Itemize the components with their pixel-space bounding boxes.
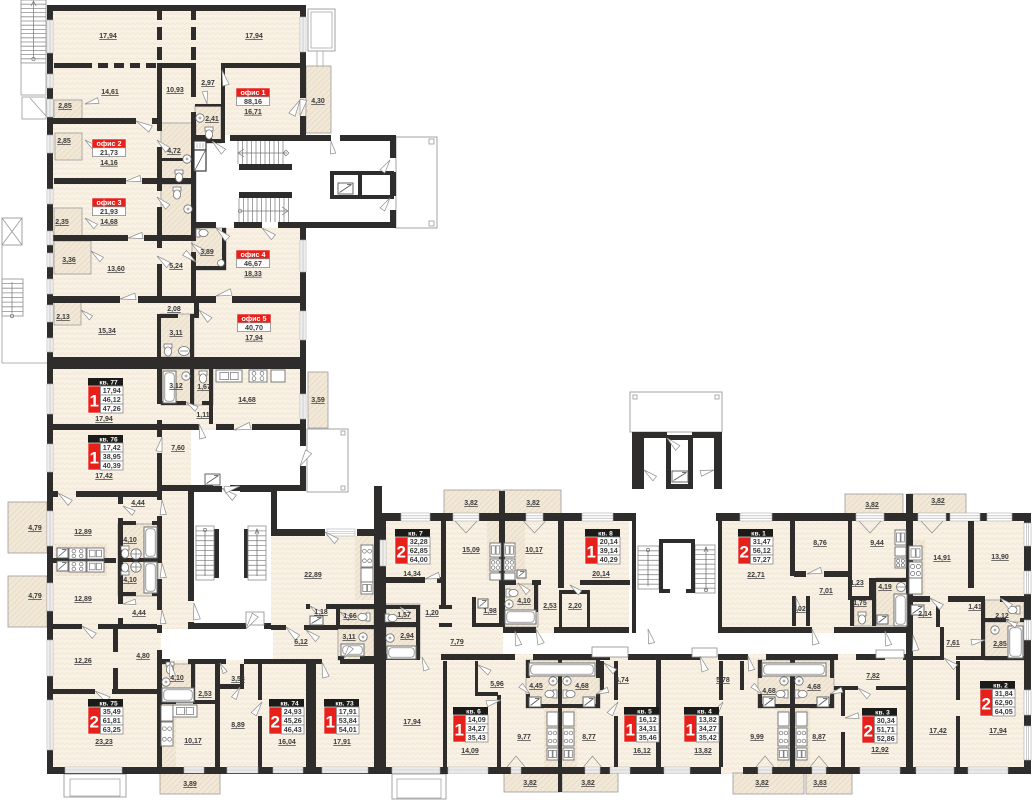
svg-text:14,09: 14,09 <box>468 715 486 724</box>
svg-text:31,84: 31,84 <box>995 689 1013 698</box>
svg-text:7,60: 7,60 <box>171 445 185 452</box>
svg-text:2: 2 <box>396 543 405 562</box>
svg-text:4,80: 4,80 <box>136 653 150 660</box>
svg-text:21,73: 21,73 <box>100 148 118 157</box>
svg-text:1,57: 1,57 <box>397 612 411 619</box>
svg-text:1: 1 <box>625 721 634 740</box>
svg-text:13,82: 13,82 <box>699 715 717 724</box>
svg-text:1,75: 1,75 <box>853 600 867 607</box>
svg-text:64,00: 64,00 <box>410 555 428 564</box>
svg-text:8,89: 8,89 <box>231 722 245 729</box>
svg-text:7,61: 7,61 <box>946 640 960 647</box>
svg-text:23,23: 23,23 <box>95 739 113 746</box>
svg-text:2,20: 2,20 <box>568 603 582 610</box>
svg-text:4,10: 4,10 <box>517 598 531 605</box>
svg-text:5,96: 5,96 <box>490 681 504 688</box>
svg-text:2,41: 2,41 <box>205 116 219 123</box>
svg-text:14,34: 14,34 <box>403 571 421 578</box>
svg-text:24,93: 24,93 <box>284 707 302 716</box>
svg-text:14,16: 14,16 <box>100 160 118 167</box>
svg-text:1: 1 <box>89 392 98 411</box>
svg-text:1,41: 1,41 <box>968 604 982 611</box>
svg-text:1,18: 1,18 <box>314 609 328 616</box>
svg-text:15,34: 15,34 <box>98 328 116 335</box>
svg-text:2,85: 2,85 <box>993 641 1007 648</box>
svg-text:4,68: 4,68 <box>807 684 821 691</box>
svg-text:1,67: 1,67 <box>197 384 211 391</box>
svg-text:9,44: 9,44 <box>870 540 884 547</box>
svg-text:56,12: 56,12 <box>753 546 771 555</box>
svg-text:3,82: 3,82 <box>755 780 769 787</box>
svg-text:18,33: 18,33 <box>244 271 262 278</box>
svg-text:46,67: 46,67 <box>244 259 262 268</box>
svg-text:88,16: 88,16 <box>244 97 262 106</box>
svg-text:офис 4: офис 4 <box>240 250 265 259</box>
svg-text:3,36: 3,36 <box>62 257 76 264</box>
svg-text:14,91: 14,91 <box>933 555 951 562</box>
svg-text:6,12: 6,12 <box>294 639 308 646</box>
svg-text:1,20: 1,20 <box>425 610 439 617</box>
svg-text:4,72: 4,72 <box>167 148 181 155</box>
svg-text:4,44: 4,44 <box>131 500 145 507</box>
svg-text:15,09: 15,09 <box>462 547 480 554</box>
svg-text:17,94: 17,94 <box>989 728 1007 735</box>
svg-text:47,26: 47,26 <box>103 404 121 413</box>
svg-text:40,39: 40,39 <box>103 461 121 470</box>
svg-text:14,61: 14,61 <box>101 89 119 96</box>
svg-text:21,93: 21,93 <box>100 207 118 216</box>
svg-text:3,89: 3,89 <box>183 781 197 788</box>
svg-text:3,12: 3,12 <box>169 383 183 390</box>
svg-text:17,91: 17,91 <box>339 707 357 716</box>
svg-text:52,86: 52,86 <box>877 734 895 743</box>
svg-text:16,12: 16,12 <box>639 715 657 724</box>
svg-text:7,01: 7,01 <box>819 588 833 595</box>
svg-text:57,27: 57,27 <box>753 555 771 564</box>
svg-text:2: 2 <box>981 695 990 714</box>
svg-text:2,85: 2,85 <box>57 138 71 145</box>
svg-text:9,77: 9,77 <box>517 734 531 741</box>
svg-text:38,95: 38,95 <box>103 452 121 461</box>
svg-text:39,14: 39,14 <box>600 546 618 555</box>
svg-text:17,42: 17,42 <box>95 473 113 480</box>
svg-text:35,43: 35,43 <box>468 733 486 742</box>
svg-text:62,85: 62,85 <box>410 546 428 555</box>
svg-text:3,11: 3,11 <box>342 634 355 641</box>
svg-text:7,79: 7,79 <box>450 639 464 646</box>
svg-text:17,94: 17,94 <box>103 386 121 395</box>
svg-text:17,42: 17,42 <box>103 443 121 452</box>
svg-text:1,98: 1,98 <box>483 608 497 615</box>
svg-text:34,27: 34,27 <box>699 724 717 733</box>
svg-text:2,94: 2,94 <box>400 633 414 640</box>
svg-text:2: 2 <box>863 722 872 741</box>
svg-text:17,94: 17,94 <box>245 335 263 342</box>
svg-text:51,71: 51,71 <box>877 725 895 734</box>
svg-text:13,60: 13,60 <box>107 266 125 273</box>
svg-text:5,24: 5,24 <box>169 263 183 270</box>
svg-text:1,02: 1,02 <box>792 606 806 613</box>
svg-text:17,42: 17,42 <box>929 728 947 735</box>
svg-text:34,27: 34,27 <box>468 724 486 733</box>
svg-text:1,23: 1,23 <box>850 580 864 587</box>
svg-text:14,68: 14,68 <box>100 219 118 226</box>
svg-text:2,85: 2,85 <box>58 103 72 110</box>
svg-text:3,53: 3,53 <box>231 676 245 683</box>
svg-text:63,25: 63,25 <box>103 725 121 734</box>
svg-text:1: 1 <box>685 721 694 740</box>
svg-text:16,71: 16,71 <box>244 109 262 116</box>
svg-text:14,68: 14,68 <box>238 397 256 404</box>
svg-text:3,82: 3,82 <box>865 502 879 509</box>
svg-text:45,26: 45,26 <box>284 716 302 725</box>
svg-text:4,45: 4,45 <box>529 683 543 690</box>
svg-text:10,17: 10,17 <box>525 547 543 554</box>
svg-text:17,94: 17,94 <box>95 416 113 423</box>
svg-text:7,82: 7,82 <box>866 673 880 680</box>
svg-text:17,94: 17,94 <box>403 719 421 726</box>
svg-text:35,46: 35,46 <box>639 733 657 742</box>
svg-text:офис 3: офис 3 <box>96 198 121 207</box>
svg-text:2,14: 2,14 <box>918 611 932 618</box>
svg-text:3,82: 3,82 <box>523 780 537 787</box>
svg-text:1,66: 1,66 <box>343 613 357 620</box>
svg-text:30,34: 30,34 <box>877 716 895 725</box>
svg-text:1,11: 1,11 <box>196 412 209 419</box>
svg-text:1: 1 <box>586 543 595 562</box>
svg-text:3,82: 3,82 <box>526 500 540 507</box>
svg-text:62,90: 62,90 <box>995 698 1013 707</box>
svg-text:20,14: 20,14 <box>592 571 610 578</box>
svg-text:4,79: 4,79 <box>28 593 42 600</box>
svg-text:2,13: 2,13 <box>56 314 70 321</box>
svg-text:12,92: 12,92 <box>871 747 889 754</box>
svg-text:офис 2: офис 2 <box>96 139 121 148</box>
svg-text:22,89: 22,89 <box>304 572 322 579</box>
svg-text:61,81: 61,81 <box>103 716 121 725</box>
svg-text:12,89: 12,89 <box>74 529 92 536</box>
svg-text:2: 2 <box>89 713 98 732</box>
svg-text:46,43: 46,43 <box>284 725 302 734</box>
svg-text:17,91: 17,91 <box>333 739 351 746</box>
svg-text:22,71: 22,71 <box>747 572 765 579</box>
svg-text:3,11: 3,11 <box>169 330 182 337</box>
svg-text:3,82: 3,82 <box>464 500 478 507</box>
svg-text:3,59: 3,59 <box>311 397 325 404</box>
svg-text:2: 2 <box>270 713 279 732</box>
svg-text:35,42: 35,42 <box>699 733 717 742</box>
svg-text:53,84: 53,84 <box>339 716 357 725</box>
svg-text:4,68: 4,68 <box>762 688 776 695</box>
svg-text:2,53: 2,53 <box>543 603 557 610</box>
svg-text:3,89: 3,89 <box>200 249 214 256</box>
svg-text:3,83: 3,83 <box>813 780 827 787</box>
svg-text:14,09: 14,09 <box>461 748 479 755</box>
svg-text:8,76: 8,76 <box>813 540 827 547</box>
svg-text:20,14: 20,14 <box>600 537 618 546</box>
svg-text:4,10: 4,10 <box>123 577 137 584</box>
svg-text:10,17: 10,17 <box>184 738 202 745</box>
svg-text:17,94: 17,94 <box>245 33 263 40</box>
svg-text:2: 2 <box>739 543 748 562</box>
svg-text:12,89: 12,89 <box>74 596 92 603</box>
svg-text:35,49: 35,49 <box>103 707 121 716</box>
svg-text:5,78: 5,78 <box>716 677 730 684</box>
svg-text:32,28: 32,28 <box>410 537 428 546</box>
svg-text:офис 1: офис 1 <box>240 88 265 97</box>
svg-text:8,87: 8,87 <box>812 734 826 741</box>
svg-text:4,44: 4,44 <box>132 610 146 617</box>
svg-text:34,31: 34,31 <box>639 724 657 733</box>
svg-text:10,93: 10,93 <box>166 87 184 94</box>
svg-text:40,70: 40,70 <box>245 323 263 332</box>
svg-text:9,99: 9,99 <box>750 734 764 741</box>
svg-text:31,47: 31,47 <box>753 537 771 546</box>
svg-text:64,05: 64,05 <box>995 707 1013 716</box>
svg-text:46,12: 46,12 <box>103 395 121 404</box>
svg-text:13,82: 13,82 <box>694 748 712 755</box>
svg-text:16,04: 16,04 <box>278 739 296 746</box>
svg-text:8,77: 8,77 <box>582 734 596 741</box>
svg-text:13,90: 13,90 <box>991 554 1009 561</box>
svg-text:4,10: 4,10 <box>170 675 184 682</box>
svg-text:3,82: 3,82 <box>931 498 945 505</box>
svg-text:54,01: 54,01 <box>339 725 357 734</box>
svg-text:офис 5: офис 5 <box>241 314 266 323</box>
svg-text:1: 1 <box>454 721 463 740</box>
svg-text:4,30: 4,30 <box>311 98 325 105</box>
svg-text:1: 1 <box>89 449 98 468</box>
svg-text:4,74: 4,74 <box>615 677 629 684</box>
svg-text:40,29: 40,29 <box>600 555 618 564</box>
svg-text:3,82: 3,82 <box>581 780 595 787</box>
svg-text:2,97: 2,97 <box>201 80 215 87</box>
svg-text:4,68: 4,68 <box>575 683 589 690</box>
svg-text:12,26: 12,26 <box>74 658 92 665</box>
svg-text:4,19: 4,19 <box>878 584 892 591</box>
svg-text:1: 1 <box>325 713 334 732</box>
svg-text:2,35: 2,35 <box>55 219 69 226</box>
svg-text:2,53: 2,53 <box>198 691 212 698</box>
svg-text:2,12: 2,12 <box>995 613 1009 620</box>
svg-text:16,12: 16,12 <box>633 748 651 755</box>
svg-text:4,79: 4,79 <box>28 525 42 532</box>
svg-text:17,94: 17,94 <box>99 33 117 40</box>
svg-text:4,10: 4,10 <box>123 537 137 544</box>
svg-text:2,08: 2,08 <box>167 306 181 313</box>
